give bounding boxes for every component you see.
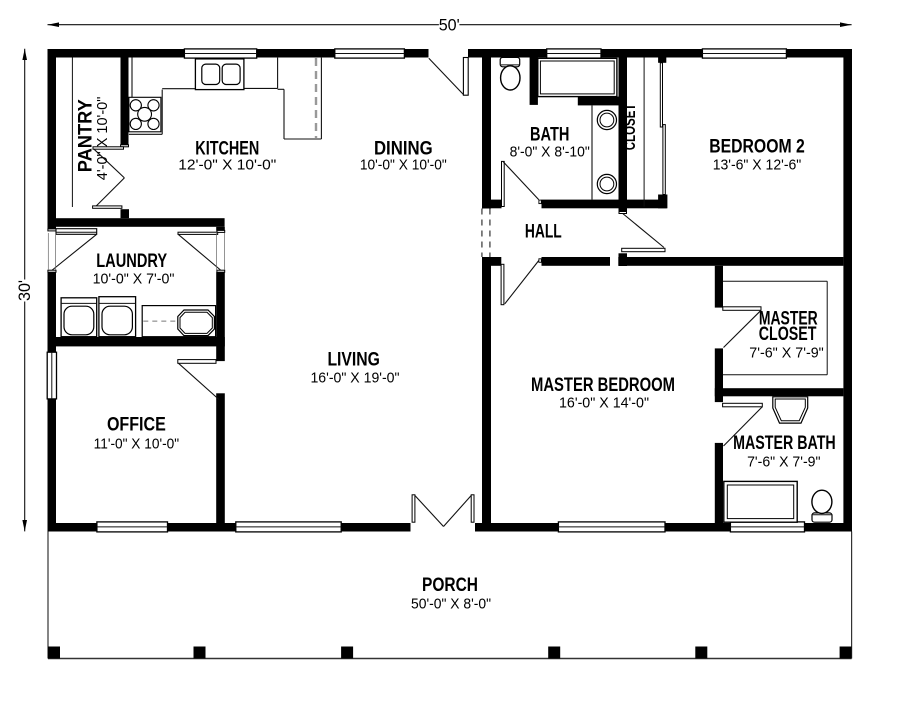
- svg-text:50'-0" X 8'-0": 50'-0" X 8'-0": [411, 596, 491, 613]
- svg-text:LAUNDRY: LAUNDRY: [96, 251, 167, 272]
- svg-text:BEDROOM 2: BEDROOM 2: [709, 137, 805, 158]
- svg-text:30': 30': [15, 280, 34, 301]
- svg-text:16'-0" X 19'-0": 16'-0" X 19'-0": [310, 370, 399, 387]
- svg-text:7'-6" X 7'-9": 7'-6" X 7'-9": [749, 345, 824, 362]
- svg-text:HALL: HALL: [525, 222, 562, 243]
- svg-text:16'-0" X 14'-0": 16'-0" X 14'-0": [559, 395, 649, 412]
- svg-text:LIVING: LIVING: [327, 349, 380, 370]
- svg-text:MASTER BATH: MASTER BATH: [733, 433, 836, 454]
- svg-text:MASTER BEDROOM: MASTER BEDROOM: [531, 375, 675, 396]
- svg-text:13'-6" X 12'-6": 13'-6" X 12'-6": [713, 157, 802, 174]
- svg-text:12'-0" X 10'-0": 12'-0" X 10'-0": [178, 157, 276, 174]
- svg-text:CLOSET: CLOSET: [759, 324, 817, 345]
- svg-text:OFFICE: OFFICE: [107, 415, 166, 436]
- svg-text:PORCH: PORCH: [422, 575, 478, 596]
- svg-text:50': 50': [439, 16, 460, 35]
- svg-text:7'-6" X 7'-9": 7'-6" X 7'-9": [747, 454, 820, 471]
- svg-text:8'-0" X 8'-10": 8'-0" X 8'-10": [510, 144, 590, 161]
- svg-text:11'-0" X 10'-0": 11'-0" X 10'-0": [94, 436, 180, 453]
- svg-text:CLOSET: CLOSET: [622, 103, 639, 150]
- svg-text:10'-0" X 10'-0": 10'-0" X 10'-0": [360, 157, 447, 174]
- svg-text:BATH: BATH: [530, 125, 569, 146]
- svg-text:10'-0" X 7'-0": 10'-0" X 7'-0": [93, 271, 175, 288]
- svg-text:4'-0" X 10'-0": 4'-0" X 10'-0": [94, 97, 111, 181]
